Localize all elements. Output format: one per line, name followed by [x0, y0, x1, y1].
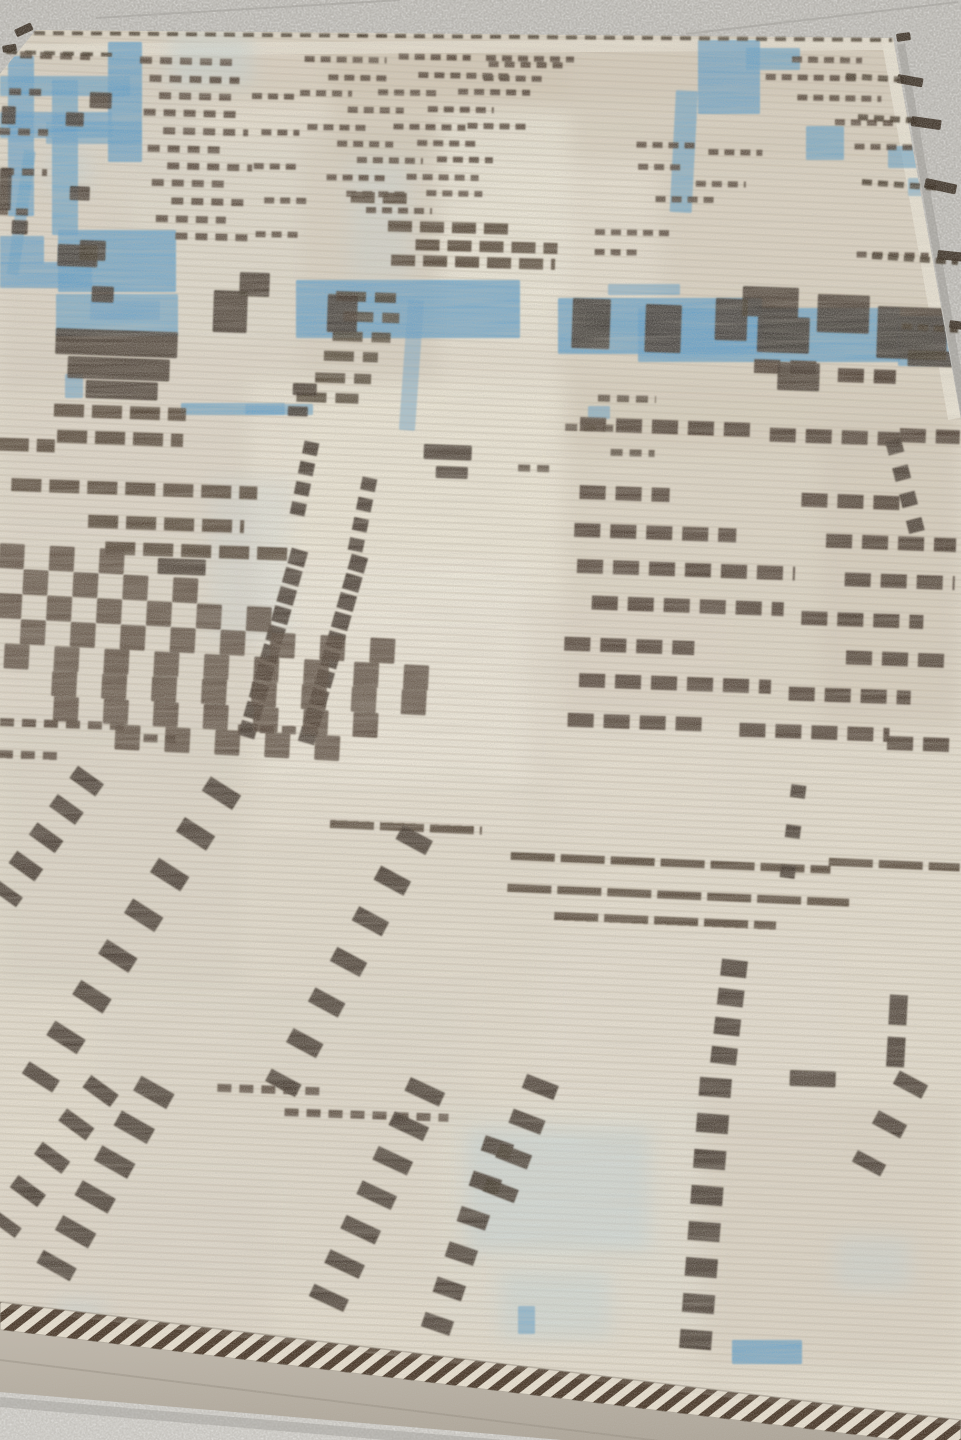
rug-scene-canvas	[0, 0, 961, 1440]
rug-photograph	[0, 0, 961, 1440]
photo-grain	[0, 0, 961, 1440]
